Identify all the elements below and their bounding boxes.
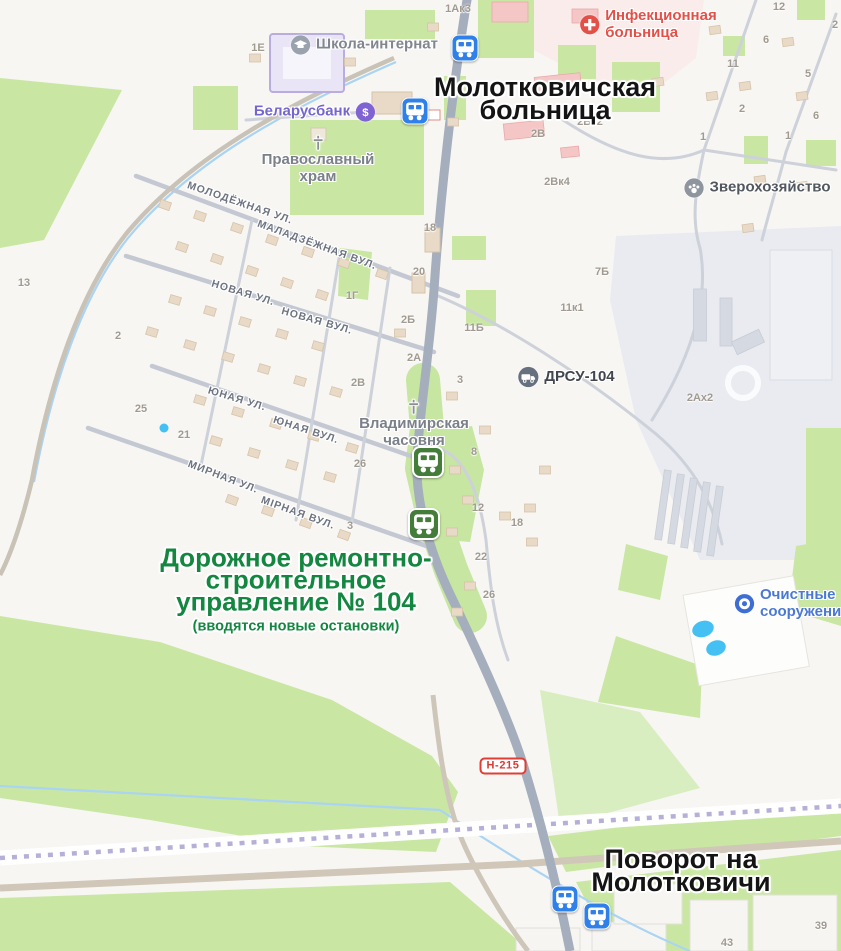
poi-vladimir-chapel[interactable]: Владимирскаячасовня [359, 398, 469, 450]
building-number: 26 [354, 458, 366, 470]
truck-icon [517, 366, 539, 388]
building-number: 25 [135, 403, 147, 415]
annotation-line: больница [434, 99, 656, 122]
building-number: 1Е [251, 42, 264, 54]
church-cross-icon [311, 134, 326, 151]
building-number: 18 [424, 222, 436, 234]
building-number: 3 [457, 374, 463, 386]
building-number: 13 [18, 277, 30, 289]
building-number: 18 [511, 517, 523, 529]
bus-stop-icon[interactable] [584, 903, 611, 930]
building-number: 2 [115, 330, 121, 342]
bus-stop-icon[interactable] [408, 508, 440, 540]
church-cross-icon [407, 398, 422, 415]
road-badge: Н-215 [480, 758, 527, 775]
building-number: 21 [178, 429, 190, 441]
building-number: 8 [471, 446, 477, 458]
bus-stop-icon[interactable] [402, 98, 429, 125]
ring-icon [734, 594, 755, 615]
bank-icon: $ [355, 102, 376, 123]
building-number: 2Б [401, 314, 415, 326]
annotation-turn-callout: Поворот наМолотковичи [591, 848, 770, 894]
bus-stop-icon[interactable] [452, 35, 479, 62]
building-number: 39 [815, 920, 827, 932]
building-number: 3 [347, 520, 353, 532]
building-number: 12 [773, 1, 785, 13]
poi-label: Инфекционнаябольница [605, 8, 716, 42]
poi-label: Школа-интернат [316, 37, 438, 54]
svg-text:$: $ [362, 107, 369, 119]
bus-stop-icon[interactable] [552, 886, 579, 913]
annotation-drsu-callout: Дорожное ремонтно-строительноеуправление… [160, 547, 431, 638]
building-number: 2Ах2 [687, 392, 713, 404]
bus-stop-icon[interactable] [412, 446, 444, 478]
school-icon [290, 35, 311, 56]
building-number: 12 [472, 502, 484, 514]
annotation-hospital-callout: Молотковичскаябольница [434, 76, 656, 122]
building-number: 20 [413, 266, 425, 278]
building-number: 1 [785, 130, 791, 142]
building-number: 2В [531, 128, 545, 140]
building-number: 22 [475, 551, 487, 563]
poi-boarding-school[interactable]: Школа-интернат [290, 35, 438, 56]
poi-fur-farm[interactable]: Зверохозяйство [684, 178, 831, 199]
building-number: 1 [700, 131, 706, 143]
paw-icon [684, 178, 705, 199]
annotation-line: Молотковичи [591, 871, 770, 894]
poi-orthodox-church[interactable]: Православныйхрам [262, 134, 375, 186]
map-canvas[interactable]: МОЛОДЁЖНАЯ УЛ.МАЛАДЗЁЖНАЯ ВУЛ.НОВАЯ УЛ.Н… [0, 0, 841, 951]
poi-drsu-104[interactable]: ДРСУ-104 [517, 366, 614, 388]
building-number: 11к1 [560, 302, 583, 314]
building-number: 7Б [595, 266, 609, 278]
building-number: 2Вк4 [544, 176, 570, 188]
building-number: 6 [813, 110, 819, 122]
building-number: 5 [805, 68, 811, 80]
building-number: 6 [763, 34, 769, 46]
building-number: 2В [351, 377, 365, 389]
annotation-subline: (вводятся новые остановки) [160, 616, 431, 638]
poi-treatment-facilities[interactable]: Очистныесооружения [734, 587, 841, 621]
building-number: 11 [727, 58, 739, 70]
poi-label: Владимирскаячасовня [359, 416, 469, 450]
poi-label: Зверохозяйство [710, 180, 831, 197]
poi-label: Беларусбанк [254, 104, 350, 121]
building-number: 2А [407, 352, 421, 364]
building-number: 11Б [464, 322, 484, 334]
building-number: 43 [721, 937, 733, 949]
annotation-line: управление № 104 [160, 591, 431, 613]
building-number: 1Г [346, 290, 358, 302]
poi-infectious-hospital[interactable]: Инфекционнаябольница [579, 8, 716, 42]
building-number: 2 [739, 103, 745, 115]
building-number: 2 [832, 19, 838, 31]
poi-label: ДРСУ-104 [544, 369, 614, 386]
poi-label: Православныйхрам [262, 152, 375, 186]
building-number: 26 [483, 589, 495, 601]
poi-belarusbank[interactable]: $Беларусбанк [254, 102, 376, 123]
medical-cross-icon [579, 15, 600, 36]
poi-label: Очистныесооружения [760, 587, 841, 621]
building-number: 1Ак3 [445, 3, 471, 15]
